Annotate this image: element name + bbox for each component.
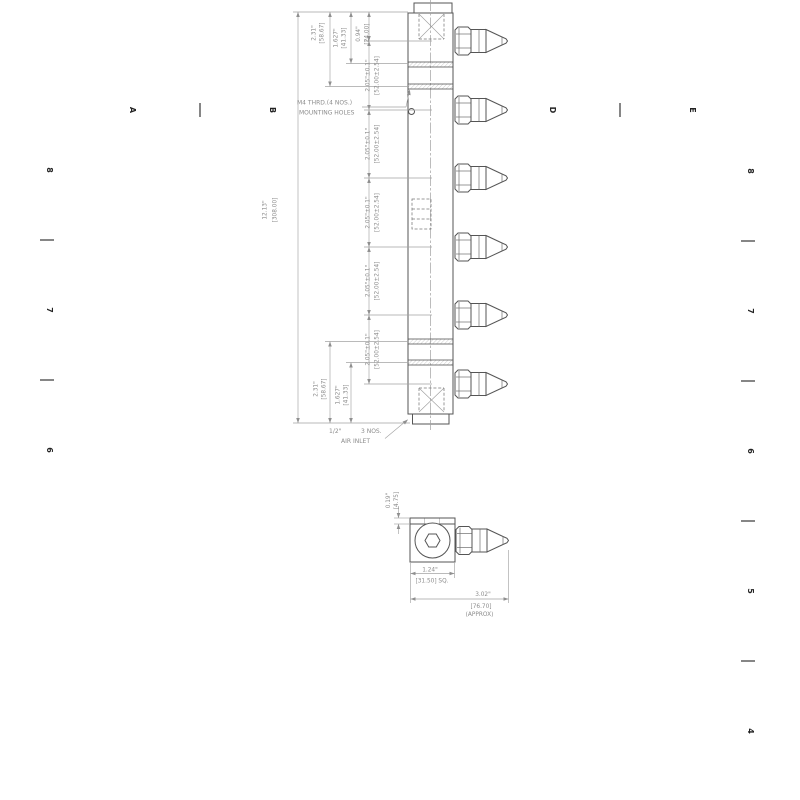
mounting-hole — [409, 109, 415, 115]
nozzle-cone — [487, 529, 509, 552]
zone-number-right-5: 5 — [746, 588, 755, 594]
dim-text-mm: [58.67] — [322, 378, 328, 399]
dim-arrow — [450, 572, 455, 576]
dim-text-mm: [4.75] — [394, 492, 400, 509]
dim-text-inch: 2.05"±0.1" — [366, 196, 372, 229]
nozzle-barrel — [471, 30, 486, 53]
zone-number-left-7: 7 — [45, 307, 54, 313]
nozzle-nut — [455, 301, 471, 329]
note-inlet-qty: 3 NOS. — [361, 428, 382, 435]
dim-arrow — [349, 59, 353, 64]
nozzle-nut — [455, 370, 471, 398]
zone-number-right-6: 6 — [746, 448, 755, 454]
drawing-sheet: ABDE87687654 12.13"[308.00]2.31"[58.67]1… — [0, 0, 800, 800]
dim-arrow — [328, 12, 332, 17]
dim-text-approx: (APPROX) — [466, 612, 494, 618]
nozzle — [455, 233, 508, 261]
zone-number-left-8: 8 — [45, 167, 54, 173]
dim-text-mm: [76.70] — [470, 604, 491, 610]
nozzle-nut — [455, 96, 471, 124]
dim-arrow — [411, 597, 416, 601]
dim-arrow — [296, 418, 300, 423]
nozzle — [455, 370, 508, 398]
dim-text-mm: [52.00±2.54] — [375, 56, 381, 95]
dim-arrow — [367, 105, 371, 110]
nozzle-nut — [455, 233, 471, 261]
hex-socket — [425, 534, 440, 547]
zone-number-right-8: 8 — [746, 168, 755, 174]
dim-arrow — [349, 418, 353, 423]
dim-text-inch: 12.13" — [263, 200, 269, 220]
dim-text-inch: 0.94" — [356, 26, 362, 42]
nozzle-cone — [486, 167, 508, 190]
nozzle-cone — [486, 373, 508, 396]
dim-text-mm: [52.00±2.54] — [375, 193, 381, 232]
nozzle-nut — [455, 27, 471, 55]
joint-band — [408, 360, 453, 365]
dim-arrow — [328, 82, 332, 87]
dim-arrow — [504, 597, 509, 601]
leader-arrow — [403, 418, 410, 424]
joint-band — [408, 339, 453, 344]
dim-arrow — [296, 12, 300, 17]
top-end-cap — [414, 3, 452, 13]
nozzle — [456, 527, 509, 555]
dim-arrow — [367, 242, 371, 247]
dim-arrow — [328, 418, 332, 423]
zone-letter-D: D — [548, 107, 557, 114]
nozzle-barrel — [471, 236, 486, 259]
dim-text-inch: 2.31" — [312, 25, 318, 41]
nozzle-barrel — [472, 529, 487, 552]
nozzle-cone — [486, 99, 508, 122]
nozzle — [455, 27, 508, 55]
joint-band — [408, 84, 453, 89]
note-air-inlet: AIR INLET — [341, 438, 370, 445]
zone-number-right-7: 7 — [746, 308, 755, 314]
dim-text-mm: [58.67] — [320, 22, 326, 43]
detail-view-manifold-end: 0.19"[4.75]1.24"[31.50] SQ.3.02"[76.70](… — [386, 492, 509, 618]
dim-arrow — [397, 524, 401, 529]
dim-text-inch: 2.05"±0.1" — [366, 265, 372, 298]
nozzle — [455, 96, 508, 124]
dim-text-inch: 2.31" — [314, 381, 320, 397]
nozzle-cone — [486, 304, 508, 327]
nozzle — [455, 164, 508, 192]
nozzle-barrel — [471, 373, 486, 396]
note-mounting-holes: M4 THRD.(4 NOS.) — [297, 100, 352, 107]
dim-text-inch: 1.627" — [336, 385, 342, 405]
dim-arrow — [367, 173, 371, 178]
nozzle-cone — [486, 30, 508, 53]
dim-text-mm: [52.00±2.54] — [375, 262, 381, 301]
dim-text-inch: 0.19" — [386, 492, 392, 508]
zone-letter-A: A — [128, 107, 137, 114]
dim-text-mm: [52.00±2.54] — [375, 125, 381, 164]
zone-labels: ABDE87687654 — [40, 103, 755, 734]
dim-text-mm: [31.50] SQ. — [415, 579, 448, 585]
note-inlet-size: 1/2" — [329, 428, 342, 435]
zone-number-left-6: 6 — [45, 447, 54, 453]
dim-arrow — [411, 572, 416, 576]
dim-text-mm: [52.00±2.54] — [375, 330, 381, 369]
main-view-manifold-front: 12.13"[308.00]2.31"[58.67]1.627"[41.33]0… — [263, 0, 508, 445]
nozzle-barrel — [471, 167, 486, 190]
dim-text-inch: 2.05"±0.1" — [366, 59, 372, 92]
dim-arrow — [328, 342, 332, 347]
dim-arrow — [367, 315, 371, 320]
dim-text-mm: [41.33] — [342, 27, 348, 48]
zone-letter-E: E — [688, 107, 697, 112]
nozzle — [455, 301, 508, 329]
dim-text-inch: 2.05"±0.1" — [366, 333, 372, 366]
note-mounting-holes: MOUNTING HOLES — [299, 110, 355, 117]
nozzle-barrel — [471, 304, 486, 327]
zone-number-right-4: 4 — [746, 728, 755, 734]
dim-arrow — [367, 310, 371, 315]
dim-arrow — [367, 12, 371, 17]
dim-arrow — [397, 513, 401, 518]
dim-text-mm: [308.00] — [273, 198, 279, 223]
dim-text-inch: 1.24" — [422, 568, 438, 574]
cad-drawing-canvas: ABDE87687654 12.13"[308.00]2.31"[58.67]1… — [0, 0, 800, 800]
dim-text-inch: 3.02" — [475, 592, 491, 598]
nozzle-barrel — [471, 99, 486, 122]
dim-text-inch: 2.05"±0.1" — [366, 128, 372, 161]
dim-text-inch: 1.627" — [334, 28, 340, 48]
dim-arrow — [367, 110, 371, 115]
dim-arrow — [349, 363, 353, 368]
joint-band — [408, 62, 453, 67]
nozzle-cone — [486, 236, 508, 259]
nozzle-nut — [455, 164, 471, 192]
nozzle-nut — [456, 527, 472, 555]
zone-letter-B: B — [268, 107, 277, 113]
dim-arrow — [367, 247, 371, 252]
dim-text-mm: [24.00] — [365, 23, 371, 44]
dim-arrow — [367, 379, 371, 384]
dim-text-mm: [41.33] — [344, 384, 350, 405]
dim-arrow — [367, 178, 371, 183]
dim-arrow — [349, 12, 353, 17]
